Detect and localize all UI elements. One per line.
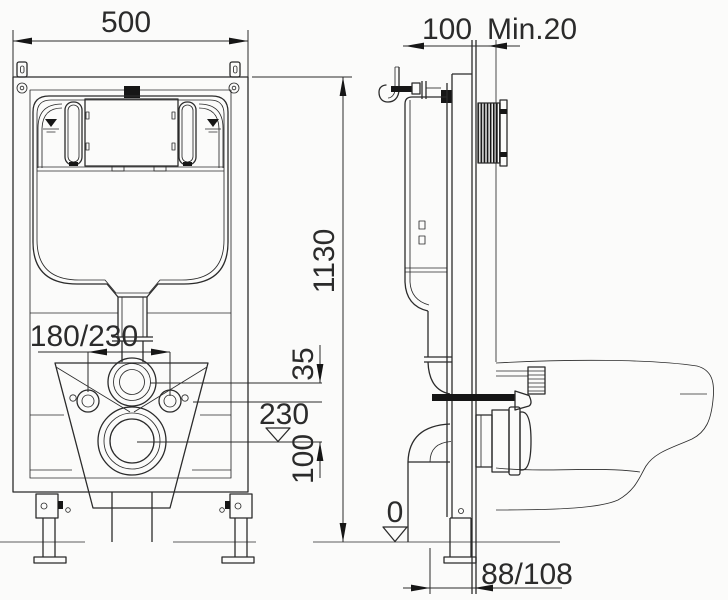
dim-outlet-wall-distance-label: 88/108 xyxy=(481,558,573,591)
arrow-left-icon xyxy=(13,38,32,45)
dim-outlet-to-bolt-label: 100 xyxy=(287,434,320,484)
mounting-plate xyxy=(55,358,208,508)
dim-floor-level: 0 xyxy=(383,496,407,542)
plate-vee-lines xyxy=(56,367,207,412)
foot-left xyxy=(34,494,70,563)
tank-ledge xyxy=(37,167,224,171)
arrow-left-icon xyxy=(405,43,424,50)
dim-outlet-level-label: 230 xyxy=(259,398,309,431)
dim-width: 500 xyxy=(13,6,248,77)
actuator-hatch xyxy=(478,103,500,163)
cistern-front xyxy=(33,96,228,297)
water-level-icon xyxy=(43,119,59,132)
water-inlet xyxy=(496,367,545,394)
screw-icon xyxy=(17,83,27,93)
dim-width-label: 500 xyxy=(101,6,151,39)
arrow-right-icon xyxy=(229,38,248,45)
arrow-right-icon xyxy=(411,585,430,592)
dim-bolt-spacing: 180/230 xyxy=(30,320,170,396)
arrow-up-icon xyxy=(340,77,347,96)
dim-flush-offset-label: 35 xyxy=(287,347,320,380)
waste-bend-side xyxy=(408,424,451,542)
waste-pipe-front xyxy=(112,492,152,542)
frame-rail-side xyxy=(444,74,476,563)
side-slot-right xyxy=(179,102,196,165)
bolt-hole-right xyxy=(159,390,188,412)
front-view: 500 xyxy=(13,6,352,563)
dim-outlet-wall-distance: 88/108 xyxy=(403,548,573,594)
technical-drawing-page: 500 xyxy=(0,0,728,600)
bolt-hole-left xyxy=(70,390,99,412)
arrow-down-icon xyxy=(340,523,347,542)
threaded-bolt xyxy=(391,86,412,92)
dim-bolt-spacing-label: 180/230 xyxy=(30,320,138,353)
dim-depth: 100 Min.20 xyxy=(403,13,577,49)
tank-channel-right xyxy=(199,104,223,168)
dim-depth-label: 100 xyxy=(422,13,472,46)
hanger-tab-left xyxy=(17,62,27,77)
dim-wall-min-label: Min.20 xyxy=(487,13,577,46)
outlet-connector xyxy=(476,407,531,475)
tank-channel-left xyxy=(38,104,62,168)
dim-outlet-to-bolt: 100 xyxy=(287,434,323,484)
cistern-side xyxy=(405,83,447,517)
side-slot-left xyxy=(65,102,82,165)
hanger-tab-right xyxy=(230,62,240,77)
foot-right xyxy=(220,494,254,563)
side-view: 100 Min.20 xyxy=(379,13,714,594)
drawing-canvas: 500 xyxy=(0,0,728,600)
arrow-right-icon xyxy=(151,349,170,356)
flush-connection-circle xyxy=(108,358,156,406)
waste-outlet-circle xyxy=(98,407,166,475)
access-panel xyxy=(85,99,178,166)
flush-pipe-side xyxy=(424,311,452,394)
dim-floor-level-label: 0 xyxy=(387,496,404,529)
foot-side xyxy=(444,557,476,563)
dim-height-label: 1130 xyxy=(308,229,341,294)
flush-actuator xyxy=(478,100,507,166)
level-marker-icon xyxy=(383,527,407,542)
screw-icon xyxy=(229,83,239,93)
